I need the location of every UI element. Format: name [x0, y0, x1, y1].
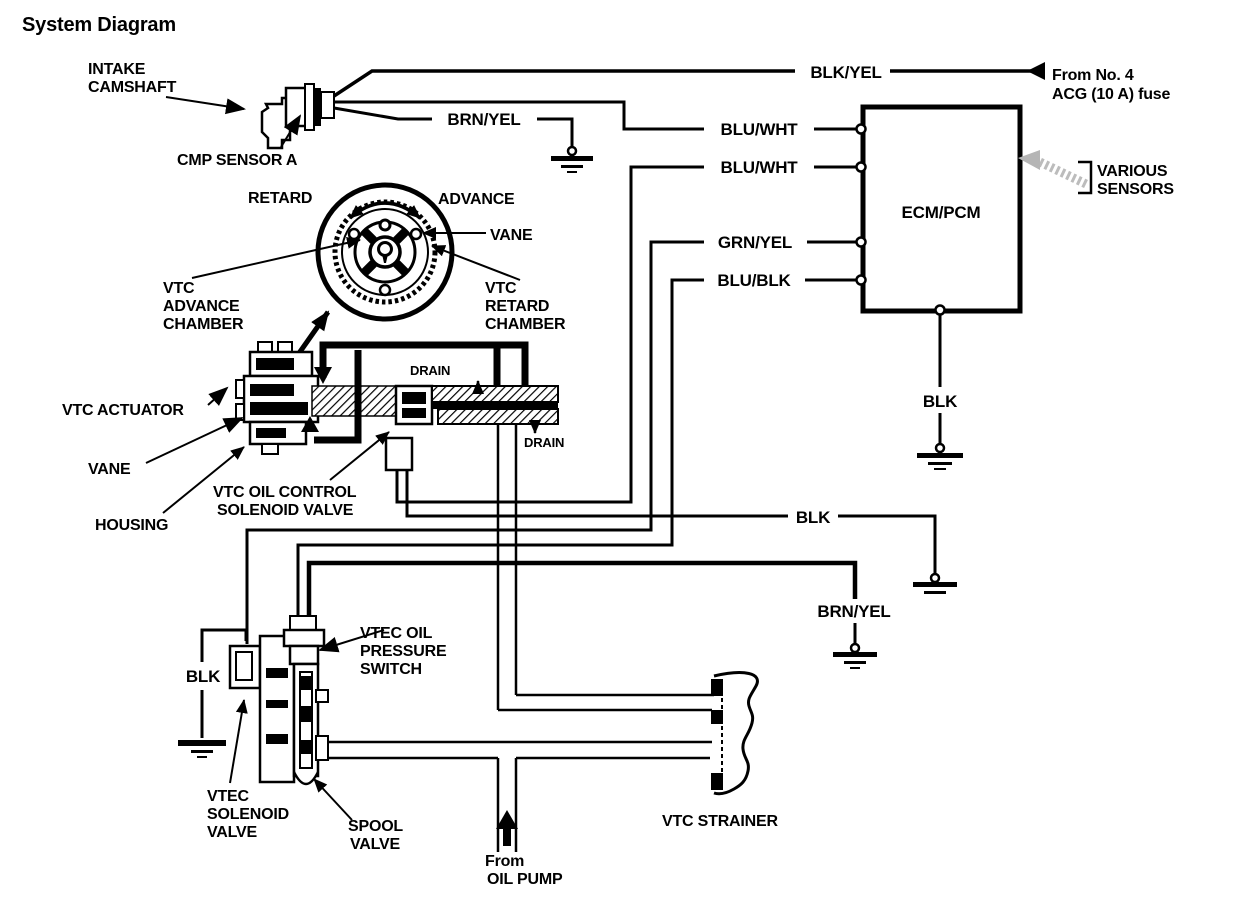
- system-diagram-canvas: System Diagram: [0, 0, 1248, 902]
- wire-label-blu-wht-1: BLU/WHT: [721, 120, 799, 139]
- intake-camshaft-label-1: INTAKE: [88, 61, 146, 78]
- oil-channel-hatch: [312, 386, 396, 416]
- housing-label: HOUSING: [95, 517, 168, 534]
- various-sensors-label-2: SENSORS: [1097, 181, 1174, 198]
- fuse-label-2: ACG (10 A) fuse: [1052, 86, 1171, 103]
- vtec-solenoid-label-3: VALVE: [207, 824, 257, 841]
- vtc-retard-chamber-3: CHAMBER: [485, 316, 566, 333]
- vtc-retard-chamber-1: VTC: [485, 280, 517, 297]
- ground-switch-brn-yel: [833, 644, 877, 669]
- various-sensors-label-1: VARIOUS: [1097, 163, 1168, 180]
- wire-blk-solenoid-right: [838, 516, 935, 575]
- vtc-strainer-label: VTC STRAINER: [662, 813, 778, 830]
- ground-solenoid-blk: [913, 574, 957, 594]
- spool-valve-label-1: SPOOL: [348, 818, 403, 835]
- fuse-label-1: From No. 4: [1052, 67, 1134, 84]
- wire-blk-yel-left: [334, 71, 795, 96]
- vtc-advance-chamber-1: VTC: [163, 280, 195, 297]
- vtec-solenoid-label-2: SOLENOID: [207, 806, 289, 823]
- page-title: System Diagram: [22, 14, 176, 36]
- spool-valve-label-2: VALVE: [350, 836, 400, 853]
- vtc-advance-chamber-2: ADVANCE: [163, 298, 240, 315]
- wire-label-blu-blk: BLU/BLK: [717, 271, 791, 290]
- wire-brn-yel-cmp-right: [537, 119, 572, 147]
- ecm-label: ECM/PCM: [902, 203, 981, 222]
- fuse-arrow: [1027, 62, 1045, 80]
- solenoid-connector: [386, 438, 412, 470]
- vtc-oil-control-solenoid-valve: [386, 381, 558, 470]
- ecm-pin-3: [857, 238, 866, 247]
- wire-label-blk-ecm: BLK: [923, 392, 958, 411]
- vane-top-label: VANE: [490, 227, 533, 244]
- cmp-sensor: [262, 84, 334, 148]
- ecm-pin-1: [857, 125, 866, 134]
- oil-control-valve-label-2: SOLENOID VALVE: [217, 502, 354, 519]
- vtc-rotor: [318, 185, 452, 319]
- ecm-pcm-box: ECM/PCM: [857, 107, 1021, 315]
- ecm-pin-2: [857, 163, 866, 172]
- pressure-switch-label-3: SWITCH: [360, 661, 422, 678]
- oil-pump-label-1: From: [485, 853, 524, 870]
- vane-left-label: VANE: [88, 461, 131, 478]
- wire-label-blu-wht-2: BLU/WHT: [721, 158, 799, 177]
- wire-label-grn-yel: GRN/YEL: [718, 233, 792, 252]
- oil-pump-label-2: OIL PUMP: [487, 871, 563, 888]
- oil-control-valve-label-1: VTC OIL CONTROL: [213, 484, 357, 501]
- vtc-advance-chamber-3: CHAMBER: [163, 316, 244, 333]
- wire-label-blk-vtec: BLK: [186, 667, 221, 686]
- vtc-actuator-label: VTC ACTUATOR: [62, 402, 184, 419]
- various-sensors-callout: [1018, 150, 1091, 193]
- drain-top-label: DRAIN: [410, 363, 450, 378]
- wire-brn-yel-switch: [309, 563, 855, 618]
- wire-label-blk-yel: BLK/YEL: [810, 63, 881, 82]
- ground-cmp: [551, 147, 593, 173]
- system-diagram-page: System Diagram: [0, 0, 1248, 902]
- vtc-retard-chamber-2: RETARD: [485, 298, 549, 315]
- wire-blk-solenoid-left: [407, 468, 788, 516]
- pressure-switch-label-2: PRESSURE: [360, 643, 447, 660]
- pressure-switch-label-1: VTEC OIL: [360, 625, 433, 642]
- cmp-sensor-label: CMP SENSOR A: [177, 152, 298, 169]
- wire-label-blk-solenoid: BLK: [796, 508, 831, 527]
- drain-bottom-label: DRAIN: [524, 435, 564, 450]
- ecm-pin-ground: [936, 306, 945, 315]
- ground-vtec-blk: [178, 740, 226, 758]
- vtec-pressure-switch: [284, 616, 324, 664]
- vtc-strainer: [711, 673, 757, 794]
- ecm-pin-4: [857, 276, 866, 285]
- retard-label: RETARD: [248, 190, 312, 207]
- ground-ecm: [917, 444, 963, 470]
- advance-label: ADVANCE: [438, 191, 515, 208]
- vtec-solenoid-label-1: VTEC: [207, 788, 250, 805]
- wire-label-brn-yel-switch: BRN/YEL: [817, 602, 890, 621]
- wire-brn-yel-cmp-left: [334, 108, 432, 119]
- vtec-valve-assembly: [230, 616, 328, 784]
- wire-label-brn-yel-cmp: BRN/YEL: [447, 110, 520, 129]
- oil-pump-arrow: [496, 810, 518, 846]
- intake-camshaft-label-2: CAMSHAFT: [88, 79, 177, 96]
